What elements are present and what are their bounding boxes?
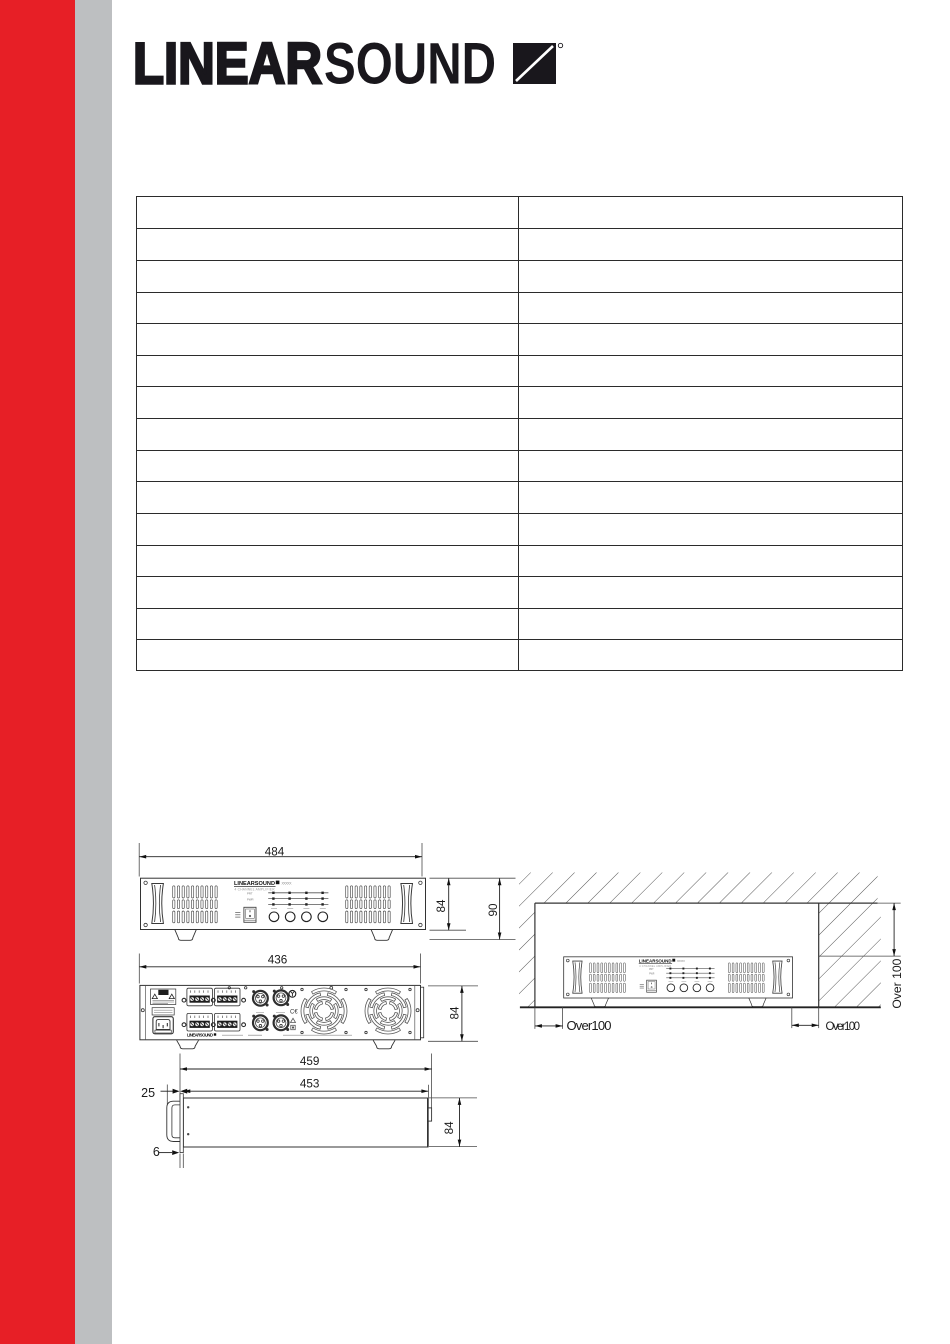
svg-text:90: 90 — [487, 903, 500, 917]
svg-text:LINEARSOUND: LINEARSOUND — [187, 1033, 213, 1038]
svg-text:453: 453 — [300, 1077, 320, 1090]
svg-text:SOUND: SOUND — [324, 31, 496, 96]
svg-text:484: 484 — [265, 845, 285, 858]
svg-text:25: 25 — [141, 1086, 155, 1100]
svg-text:459: 459 — [300, 1055, 320, 1068]
svg-text:6: 6 — [153, 1145, 160, 1159]
svg-text:84: 84 — [448, 1006, 461, 1020]
svg-text:Over100: Over100 — [567, 1018, 612, 1033]
svg-text:Over100: Over100 — [826, 1021, 861, 1033]
svg-text:436: 436 — [268, 954, 288, 967]
svg-text:C€: C€ — [290, 1010, 298, 1016]
svg-text:LINEAR: LINEAR — [133, 31, 322, 96]
svg-text:84: 84 — [443, 1121, 456, 1135]
svg-text:Over 100: Over 100 — [890, 958, 904, 1008]
svg-text:84: 84 — [435, 899, 448, 913]
